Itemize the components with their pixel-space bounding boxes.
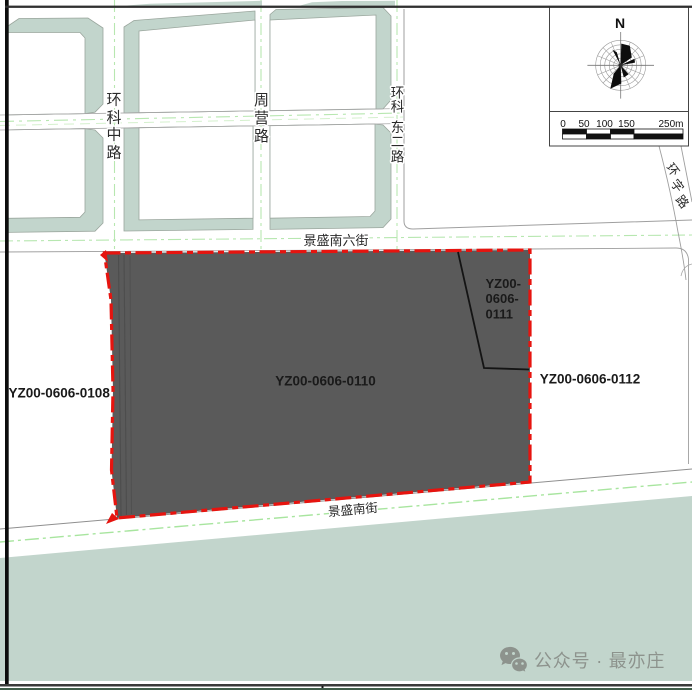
svg-text:0: 0: [560, 119, 566, 130]
svg-text:50: 50: [578, 119, 590, 130]
svg-text:YZ00-0606-0108: YZ00-0606-0108: [9, 386, 111, 401]
svg-text:YZ00-: YZ00-: [486, 276, 521, 291]
svg-text:环科中路: 环科中路: [106, 92, 121, 162]
svg-text:0111: 0111: [486, 306, 514, 321]
svg-text:0606-: 0606-: [486, 291, 519, 306]
svg-text:YZ00-0606-0110: YZ00-0606-0110: [275, 373, 376, 388]
svg-text:250m: 250m: [658, 119, 683, 130]
svg-text:100: 100: [596, 119, 613, 130]
svg-text:N: N: [615, 15, 625, 31]
svg-text:YZ00-0606-0112: YZ00-0606-0112: [540, 372, 641, 387]
svg-text:景盛南六街: 景盛南六街: [303, 233, 368, 248]
svg-text:环科东二路: 环科东二路: [391, 86, 405, 165]
svg-text:公众号 · 最亦庄: 公众号 · 最亦庄: [534, 651, 665, 671]
svg-text:周营路: 周营路: [254, 92, 269, 145]
svg-text:150: 150: [618, 119, 635, 130]
